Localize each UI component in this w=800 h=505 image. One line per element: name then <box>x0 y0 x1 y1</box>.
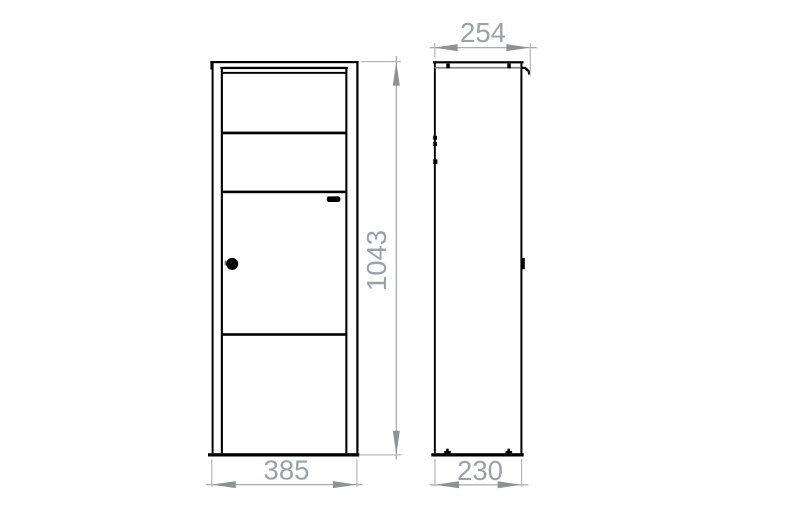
svg-text:254: 254 <box>460 17 506 48</box>
svg-text:1043: 1043 <box>361 230 392 291</box>
svg-text:230: 230 <box>457 455 503 486</box>
svg-text:385: 385 <box>264 455 310 486</box>
